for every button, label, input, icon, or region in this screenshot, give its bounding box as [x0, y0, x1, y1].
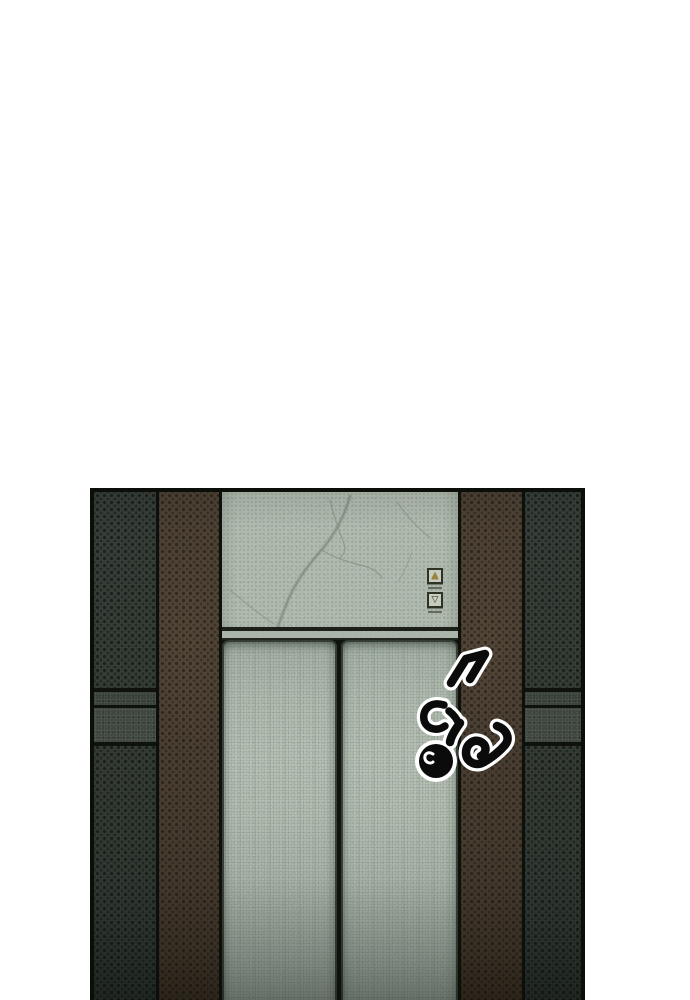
wall-seam-line: [94, 742, 156, 746]
comic-page: ▲ ▽: [0, 0, 690, 1000]
wall-seam-line: [525, 742, 581, 746]
elevator-door-left: [222, 640, 337, 1000]
elevator-up-button: ▲: [427, 568, 443, 584]
marble-veins-graphic: [222, 492, 458, 627]
wall-seam-band: [525, 692, 581, 705]
elevator-down-button: ▽: [427, 592, 443, 608]
wall-dark-left: [94, 492, 156, 1000]
wall-seam-band: [525, 708, 581, 742]
pillar-brown-left: [159, 492, 219, 1000]
elevator-header-panel: ▲ ▽: [222, 492, 458, 627]
wall-dark-right: [525, 492, 581, 1000]
button-caption-down: [428, 611, 442, 613]
sfx-ding-graphic: [400, 635, 530, 795]
up-triangle-icon: ▲: [432, 572, 439, 581]
wall-seam-band: [94, 692, 156, 705]
sfx-ding: ติ๊ง: [400, 635, 530, 795]
down-triangle-icon: ▽: [432, 596, 439, 605]
wall-seam-band: [94, 708, 156, 742]
button-caption-up: [428, 587, 442, 589]
